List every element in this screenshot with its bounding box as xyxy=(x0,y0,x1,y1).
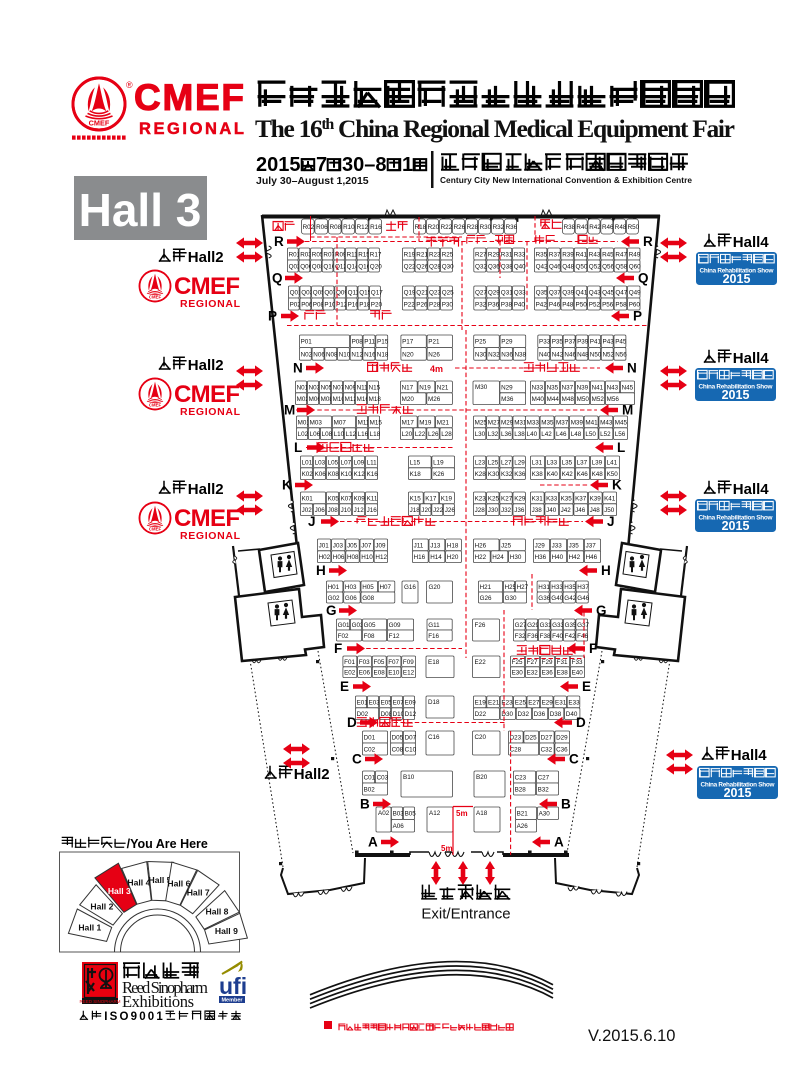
svg-text:M27: M27 xyxy=(488,419,501,426)
svg-text:Q: Q xyxy=(638,271,649,286)
svg-text:A02: A02 xyxy=(378,810,390,817)
svg-text:B02: B02 xyxy=(364,786,376,793)
svg-text:M56: M56 xyxy=(607,396,620,403)
svg-text:N17: N17 xyxy=(402,384,414,391)
svg-text:CMEF: CMEF xyxy=(89,118,110,127)
svg-text:B: B xyxy=(561,797,571,812)
svg-text:Q36: Q36 xyxy=(488,263,500,270)
svg-text:Q48: Q48 xyxy=(562,263,574,270)
svg-text:L22: L22 xyxy=(415,431,426,438)
svg-text:R11: R11 xyxy=(347,251,359,258)
svg-text:M41: M41 xyxy=(585,419,598,426)
svg-text:Hall2: Hall2 xyxy=(188,357,224,374)
svg-text:E08: E08 xyxy=(374,670,386,677)
svg-text:N19: N19 xyxy=(419,384,431,391)
svg-text:P: P xyxy=(633,309,642,324)
svg-text:K12: K12 xyxy=(354,471,366,478)
svg-text:K29: K29 xyxy=(514,495,526,502)
svg-text:Hall4: Hall4 xyxy=(733,481,770,498)
svg-text:H24: H24 xyxy=(492,554,504,561)
svg-text:D25: D25 xyxy=(525,734,537,741)
svg-text:C10: C10 xyxy=(405,746,417,753)
svg-text:A30: A30 xyxy=(539,811,551,818)
svg-text:K48: K48 xyxy=(592,471,604,478)
svg-text:F01: F01 xyxy=(344,659,355,666)
svg-text:G: G xyxy=(596,603,607,618)
svg-text:G29: G29 xyxy=(527,622,539,629)
svg-text:Q28: Q28 xyxy=(429,263,441,270)
svg-text:F08: F08 xyxy=(364,633,375,640)
svg-text:F33: F33 xyxy=(572,659,583,666)
svg-text:H26: H26 xyxy=(475,542,487,549)
svg-text:N16: N16 xyxy=(364,351,376,358)
svg-text:N45: N45 xyxy=(622,384,634,391)
svg-text:P37: P37 xyxy=(564,339,576,346)
svg-text:D32: D32 xyxy=(518,711,530,718)
svg-text:H16: H16 xyxy=(414,554,426,561)
svg-text:N38: N38 xyxy=(515,351,527,358)
svg-text:P50: P50 xyxy=(576,301,588,308)
svg-text:L52: L52 xyxy=(600,431,611,438)
svg-text:H40: H40 xyxy=(552,554,564,561)
svg-text:G09: G09 xyxy=(389,622,401,629)
svg-text:P60: P60 xyxy=(629,301,641,308)
svg-text:J25: J25 xyxy=(501,542,512,549)
svg-text:C23: C23 xyxy=(515,774,527,781)
svg-text:K41: K41 xyxy=(604,495,616,502)
svg-text:P26: P26 xyxy=(416,301,428,308)
svg-text:J05: J05 xyxy=(347,542,358,549)
svg-text:E01: E01 xyxy=(357,699,369,706)
svg-text:N09: N09 xyxy=(345,384,357,391)
svg-text:N37: N37 xyxy=(562,384,574,391)
svg-text:F27: F27 xyxy=(527,659,538,666)
svg-text:J40: J40 xyxy=(546,507,557,514)
svg-text:P33: P33 xyxy=(539,339,551,346)
svg-text:Hall2: Hall2 xyxy=(294,766,330,783)
svg-text:Q20: Q20 xyxy=(370,263,382,270)
svg-text:E23: E23 xyxy=(501,699,513,706)
svg-text:L50: L50 xyxy=(585,431,596,438)
svg-text:H30: H30 xyxy=(510,554,522,561)
svg-text:K46: K46 xyxy=(577,471,589,478)
svg-text:Q38: Q38 xyxy=(501,263,513,270)
svg-text:R30: R30 xyxy=(480,224,492,231)
svg-text:F12: F12 xyxy=(389,633,400,640)
svg-text:G11: G11 xyxy=(428,622,440,629)
svg-text:K40: K40 xyxy=(547,471,559,478)
svg-text:C03: C03 xyxy=(377,774,389,781)
svg-text:C32: C32 xyxy=(541,746,553,753)
svg-text:P40: P40 xyxy=(514,301,526,308)
svg-text:H20: H20 xyxy=(447,554,459,561)
svg-text:Q40: Q40 xyxy=(514,263,526,270)
svg-text:N30: N30 xyxy=(475,351,487,358)
svg-text:K06: K06 xyxy=(315,471,327,478)
svg-text:E21: E21 xyxy=(488,699,500,706)
svg-text:R39: R39 xyxy=(562,251,574,258)
svg-text:G42: G42 xyxy=(564,595,576,602)
svg-text:L02: L02 xyxy=(298,431,309,438)
svg-text:Member: Member xyxy=(221,998,243,1004)
svg-text:N12: N12 xyxy=(351,351,363,358)
svg-text:J35: J35 xyxy=(569,542,580,549)
svg-text:H21: H21 xyxy=(480,584,492,591)
svg-text:G30: G30 xyxy=(505,595,517,602)
svg-text:D18: D18 xyxy=(428,699,440,706)
svg-text:Q35: Q35 xyxy=(536,289,548,296)
svg-text:K42: K42 xyxy=(562,471,574,478)
svg-text:E27: E27 xyxy=(528,699,540,706)
svg-text:K11: K11 xyxy=(367,495,378,502)
svg-text:L08: L08 xyxy=(322,431,333,438)
svg-text:N33: N33 xyxy=(532,384,544,391)
svg-text:E06: E06 xyxy=(359,670,371,677)
svg-text:M: M xyxy=(622,403,633,418)
svg-text:P46: P46 xyxy=(549,301,561,308)
svg-text:K19: K19 xyxy=(441,495,453,502)
svg-text:R40: R40 xyxy=(576,224,588,231)
svg-text:H18: H18 xyxy=(447,542,459,549)
svg-text:J48: J48 xyxy=(590,507,601,514)
svg-text:2015: 2015 xyxy=(256,154,301,176)
svg-text:P48: P48 xyxy=(562,301,574,308)
svg-text:K26: K26 xyxy=(433,471,445,478)
svg-text:L32: L32 xyxy=(488,431,499,438)
svg-text:H02: H02 xyxy=(319,554,331,561)
svg-text:5m: 5m xyxy=(441,844,453,853)
svg-text:R43: R43 xyxy=(589,251,601,258)
svg-text:R49: R49 xyxy=(629,251,641,258)
svg-text:G26: G26 xyxy=(480,595,492,602)
svg-text:ufi: ufi xyxy=(219,973,247,999)
svg-text:P36: P36 xyxy=(488,301,500,308)
svg-text:Hall 7: Hall 7 xyxy=(187,888,210,898)
svg-text:N05: N05 xyxy=(321,384,333,391)
svg-text:B10: B10 xyxy=(403,774,415,781)
svg-text:H06: H06 xyxy=(333,554,345,561)
svg-text:P43: P43 xyxy=(603,339,615,346)
svg-text:R23: R23 xyxy=(429,251,441,258)
svg-text:P41: P41 xyxy=(590,339,602,346)
svg-text:L01: L01 xyxy=(302,459,313,466)
svg-text:H46: H46 xyxy=(586,554,598,561)
svg-text:R45: R45 xyxy=(602,251,614,258)
svg-text:Q37: Q37 xyxy=(549,289,561,296)
svg-text:E05: E05 xyxy=(381,699,393,706)
svg-text:Hall4: Hall4 xyxy=(731,747,768,764)
svg-text:G01: G01 xyxy=(338,622,350,629)
svg-text:R19: R19 xyxy=(404,251,416,258)
svg-text:REGIONAL: REGIONAL xyxy=(180,298,241,310)
svg-text:July 30–August 1,2015: July 30–August 1,2015 xyxy=(256,175,369,187)
svg-text:P06: P06 xyxy=(301,301,313,308)
svg-text:G35: G35 xyxy=(565,622,577,629)
svg-text:A26: A26 xyxy=(517,823,529,830)
svg-text:K05: K05 xyxy=(328,495,340,502)
svg-text:R36: R36 xyxy=(506,224,518,231)
svg-text:N10: N10 xyxy=(339,351,351,358)
svg-text:E32: E32 xyxy=(527,670,539,677)
svg-text:K38: K38 xyxy=(532,471,544,478)
svg-text:H: H xyxy=(316,563,326,578)
svg-text:H33: H33 xyxy=(551,584,563,591)
svg-text:F25: F25 xyxy=(512,659,523,666)
svg-text:F16: F16 xyxy=(428,633,439,640)
svg-text:F40: F40 xyxy=(552,633,563,640)
svg-text:B: B xyxy=(360,797,370,812)
svg-text:2015: 2015 xyxy=(722,388,750,402)
svg-text:1: 1 xyxy=(402,154,413,176)
svg-text:R32: R32 xyxy=(493,224,505,231)
svg-text:E36: E36 xyxy=(542,670,554,677)
svg-text:M21: M21 xyxy=(437,419,450,426)
svg-text:K27: K27 xyxy=(501,495,513,502)
svg-text:M45: M45 xyxy=(615,419,628,426)
svg-text:F29: F29 xyxy=(542,659,553,666)
svg-text:K09: K09 xyxy=(354,495,366,502)
svg-text:K07: K07 xyxy=(341,495,353,502)
svg-text:C01: C01 xyxy=(364,774,376,781)
svg-text:P12: P12 xyxy=(336,301,348,308)
svg-text:R28: R28 xyxy=(467,224,479,231)
svg-text:K17: K17 xyxy=(425,495,437,502)
svg-text:D02: D02 xyxy=(357,711,369,718)
svg-text:N41: N41 xyxy=(592,384,604,391)
svg-text:L30: L30 xyxy=(475,431,486,438)
svg-text:Q26: Q26 xyxy=(416,263,428,270)
svg-text:E33: E33 xyxy=(568,699,580,706)
svg-text:G02: G02 xyxy=(328,595,340,602)
svg-text:L33: L33 xyxy=(547,459,558,466)
svg-text:REED SINOPHARM: REED SINOPHARM xyxy=(79,999,120,1004)
svg-text:P08: P08 xyxy=(352,339,364,346)
svg-text:J42: J42 xyxy=(561,507,572,514)
svg-text:E10: E10 xyxy=(388,670,400,677)
svg-text:E02: E02 xyxy=(344,670,356,677)
svg-text:L38: L38 xyxy=(514,431,525,438)
svg-text:N46: N46 xyxy=(564,351,576,358)
svg-text:L23: L23 xyxy=(475,459,486,466)
svg-text:D: D xyxy=(347,715,357,730)
svg-text:N07: N07 xyxy=(333,384,345,391)
svg-text:4m: 4m xyxy=(430,364,443,374)
svg-text:F02: F02 xyxy=(338,633,349,640)
svg-text:F42: F42 xyxy=(565,633,576,640)
svg-text:Q41: Q41 xyxy=(576,289,588,296)
svg-text:CMEF: CMEF xyxy=(174,381,240,408)
svg-text:L35: L35 xyxy=(562,459,573,466)
svg-text:Q58: Q58 xyxy=(615,263,627,270)
svg-text:K30: K30 xyxy=(488,471,500,478)
svg-text:C: C xyxy=(352,752,362,767)
svg-text:REGIONAL: REGIONAL xyxy=(139,120,244,138)
svg-text:2015: 2015 xyxy=(723,272,751,286)
svg-text:L06: L06 xyxy=(310,431,321,438)
svg-text:Q60: Q60 xyxy=(629,263,641,270)
svg-text:Hall4: Hall4 xyxy=(733,350,770,367)
svg-text:K28: K28 xyxy=(475,471,487,478)
svg-text:Q49: Q49 xyxy=(629,289,641,296)
svg-text:G: G xyxy=(326,603,337,618)
svg-text:Q46: Q46 xyxy=(549,263,561,270)
svg-text:R26: R26 xyxy=(454,224,466,231)
svg-text:L39: L39 xyxy=(592,459,603,466)
svg-text:Hall 4: Hall 4 xyxy=(127,878,150,888)
svg-text:N56: N56 xyxy=(615,351,627,358)
svg-text:M39: M39 xyxy=(571,419,584,426)
svg-text:P16: P16 xyxy=(348,301,360,308)
svg-text:L36: L36 xyxy=(501,431,512,438)
svg-text:E30: E30 xyxy=(512,670,524,677)
svg-text:H35: H35 xyxy=(564,584,576,591)
svg-text:R35: R35 xyxy=(536,251,548,258)
svg-text:P56: P56 xyxy=(602,301,614,308)
svg-text:J20: J20 xyxy=(421,507,432,514)
svg-text:REGIONAL: REGIONAL xyxy=(180,530,241,542)
svg-text:P10: P10 xyxy=(324,301,336,308)
svg-text:P29: P29 xyxy=(501,339,513,346)
svg-text:N15: N15 xyxy=(369,384,381,391)
svg-text:Q43: Q43 xyxy=(589,289,601,296)
svg-text:L15: L15 xyxy=(410,459,421,466)
svg-text:N20: N20 xyxy=(402,351,414,358)
svg-text:L: L xyxy=(294,440,302,455)
svg-text:M19: M19 xyxy=(419,419,432,426)
svg-text:R50: R50 xyxy=(628,224,640,231)
svg-text:R46: R46 xyxy=(602,224,614,231)
svg-text:2015: 2015 xyxy=(724,786,752,800)
svg-text:K18: K18 xyxy=(410,471,422,478)
svg-text:D01: D01 xyxy=(364,734,376,741)
svg-text:J28: J28 xyxy=(475,507,486,514)
svg-text:M44: M44 xyxy=(547,396,560,403)
svg-text:G46: G46 xyxy=(577,595,589,602)
svg-text:Hall2: Hall2 xyxy=(188,249,224,266)
svg-text:B03: B03 xyxy=(393,811,405,818)
svg-text:F05: F05 xyxy=(374,659,385,666)
svg-text:A18: A18 xyxy=(476,810,488,817)
svg-text:N35: N35 xyxy=(547,384,559,391)
svg-text:P21: P21 xyxy=(428,339,440,346)
svg-text:K02: K02 xyxy=(302,471,314,478)
svg-text:CMEF: CMEF xyxy=(149,403,162,408)
svg-text:Q17: Q17 xyxy=(371,289,383,296)
svg-text:N36: N36 xyxy=(501,351,513,358)
svg-text:R41: R41 xyxy=(576,251,588,258)
svg-text:R: R xyxy=(643,234,653,249)
svg-text:R27: R27 xyxy=(475,251,487,258)
svg-text:Q25: Q25 xyxy=(442,289,454,296)
svg-text:M15: M15 xyxy=(370,419,383,426)
svg-text:R22: R22 xyxy=(441,224,453,231)
svg-text:H07: H07 xyxy=(380,584,392,591)
svg-text:M30: M30 xyxy=(475,384,488,391)
svg-text:N06: N06 xyxy=(313,351,325,358)
svg-text:A12: A12 xyxy=(429,810,441,817)
svg-text:R33: R33 xyxy=(514,251,526,258)
svg-text:Q27: Q27 xyxy=(475,289,487,296)
svg-text:H03: H03 xyxy=(345,584,357,591)
svg-text:L07: L07 xyxy=(341,459,352,466)
svg-text:D23: D23 xyxy=(510,734,522,741)
svg-text:K25: K25 xyxy=(488,495,500,502)
svg-text:M36: M36 xyxy=(501,396,514,403)
svg-text:L31: L31 xyxy=(532,459,543,466)
svg-text:R06: R06 xyxy=(316,224,328,231)
svg-text:C16: C16 xyxy=(428,734,440,741)
svg-text:®: ® xyxy=(126,80,133,90)
svg-text:N43: N43 xyxy=(607,384,619,391)
svg-text:Hall 9: Hall 9 xyxy=(215,926,238,936)
svg-text:J03: J03 xyxy=(333,542,344,549)
svg-text:B21: B21 xyxy=(517,811,529,818)
svg-text:K35: K35 xyxy=(561,495,573,502)
svg-text:M48: M48 xyxy=(562,396,575,403)
svg-text:B05: B05 xyxy=(405,811,417,818)
svg-text:L20: L20 xyxy=(402,431,413,438)
svg-text:C20: C20 xyxy=(475,734,487,741)
svg-text:L11: L11 xyxy=(367,459,378,466)
svg-text:H12: H12 xyxy=(375,554,387,561)
svg-text:D30: D30 xyxy=(501,711,513,718)
svg-text:F: F xyxy=(589,641,597,656)
svg-text:H14: H14 xyxy=(430,554,442,561)
svg-text:Q45: Q45 xyxy=(602,289,614,296)
svg-text:2015: 2015 xyxy=(722,519,750,533)
svg-text:M26: M26 xyxy=(428,396,441,403)
svg-text:P25: P25 xyxy=(475,339,487,346)
svg-text:R48: R48 xyxy=(615,224,627,231)
svg-text:E38: E38 xyxy=(557,670,569,677)
svg-text:CMEF: CMEF xyxy=(149,295,162,300)
svg-text:R10: R10 xyxy=(343,224,355,231)
svg-text:F07: F07 xyxy=(388,659,399,666)
svg-text:N01: N01 xyxy=(297,384,309,391)
svg-text:Hall 1: Hall 1 xyxy=(78,922,101,932)
svg-text:Hall 3: Hall 3 xyxy=(79,184,202,236)
svg-text:R38: R38 xyxy=(564,224,576,231)
svg-text:Q30: Q30 xyxy=(442,263,454,270)
svg-text:G36: G36 xyxy=(538,595,550,602)
svg-text:P18: P18 xyxy=(359,301,371,308)
svg-text:F32: F32 xyxy=(515,633,526,640)
svg-text:J08: J08 xyxy=(328,507,339,514)
svg-text:P35: P35 xyxy=(552,339,564,346)
svg-text:J13: J13 xyxy=(430,542,441,549)
svg-text:L27: L27 xyxy=(501,459,512,466)
svg-text:F03: F03 xyxy=(359,659,370,666)
svg-text:L16: L16 xyxy=(358,431,369,438)
svg-text:R25: R25 xyxy=(442,251,454,258)
svg-text:L28: L28 xyxy=(441,431,452,438)
svg-text:P15: P15 xyxy=(377,339,389,346)
svg-text:P20: P20 xyxy=(371,301,383,308)
svg-text:H36: H36 xyxy=(535,554,547,561)
svg-text:N08: N08 xyxy=(326,351,338,358)
svg-text:E18: E18 xyxy=(428,659,440,666)
svg-text:R17: R17 xyxy=(370,251,382,258)
svg-text:V.2015.6.10: V.2015.6.10 xyxy=(588,1027,675,1045)
svg-text:G27: G27 xyxy=(515,622,527,629)
svg-text:L42: L42 xyxy=(541,431,552,438)
svg-text:D07: D07 xyxy=(405,734,417,741)
svg-text:P17: P17 xyxy=(402,339,414,346)
svg-text:E: E xyxy=(582,679,591,694)
svg-text:E19: E19 xyxy=(475,699,487,706)
svg-text:R02: R02 xyxy=(303,224,315,231)
svg-text:A: A xyxy=(368,835,378,850)
